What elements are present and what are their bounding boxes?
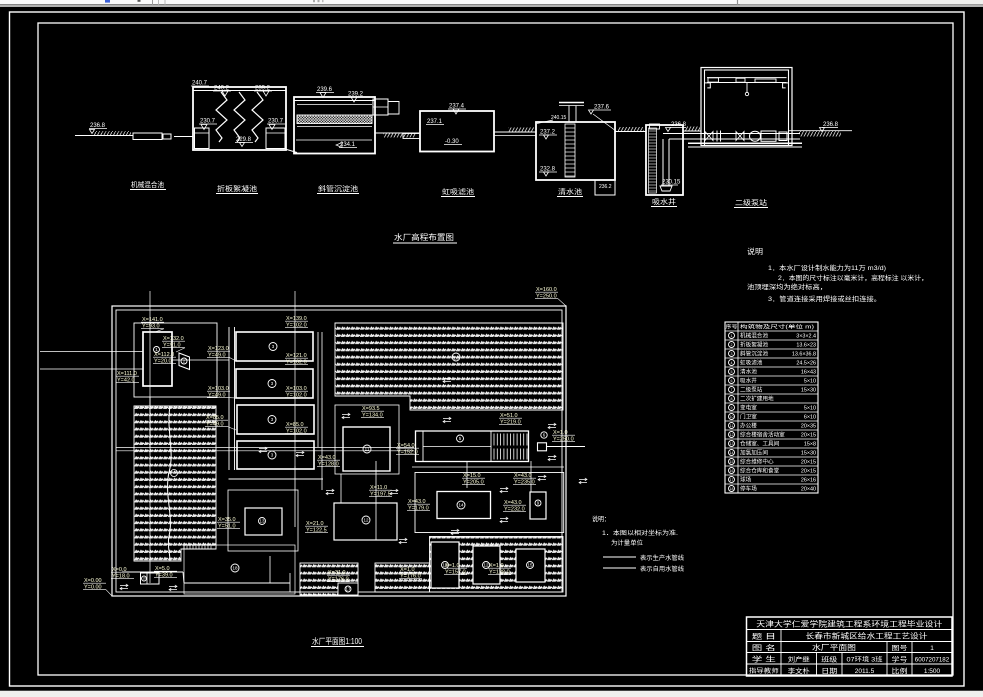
svg-text:5×10: 5×10	[804, 406, 816, 412]
svg-text:变电室: 变电室	[740, 404, 757, 412]
svg-text:为计量单位: 为计量单位	[611, 539, 643, 547]
svg-text:15: 15	[730, 460, 734, 464]
svg-text:加氯加压间: 加氯加压间	[740, 449, 768, 457]
svg-text:天津大学仁爱学院建筑工程系环境工程毕业设计: 天津大学仁爱学院建筑工程系环境工程毕业设计	[756, 620, 942, 629]
svg-text:18: 18	[232, 566, 238, 571]
svg-text:13.6×23: 13.6×23	[796, 343, 816, 349]
svg-text:15×8: 15×8	[804, 442, 816, 448]
svg-text:综合维修中心: 综合维修中心	[740, 458, 774, 466]
svg-text:指导教师: 指导教师	[749, 667, 779, 675]
svg-text:12: 12	[363, 518, 369, 523]
svg-text:18: 18	[730, 487, 734, 491]
svg-text:仓储室、工具间: 仓储室、工具间	[740, 440, 779, 448]
svg-text:16×43: 16×43	[801, 370, 816, 376]
svg-text:13.6×36.8: 13.6×36.8	[792, 352, 816, 358]
svg-text:表示自用水管线: 表示自用水管线	[640, 565, 684, 573]
svg-text:二级泵站: 二级泵站	[735, 198, 767, 207]
svg-text:20×40: 20×40	[801, 487, 816, 493]
svg-text:14: 14	[730, 451, 734, 455]
svg-text:综合仓库和食堂: 综合仓库和食堂	[740, 467, 780, 475]
svg-text:07环境 3班: 07环境 3班	[847, 655, 883, 663]
svg-text:长春市新城区给水工程工艺设计: 长春市新城区给水工程工艺设计	[806, 632, 928, 641]
svg-text:清水池: 清水池	[740, 368, 757, 376]
svg-text:5: 5	[731, 370, 733, 374]
svg-text:斜管沉淀池: 斜管沉淀池	[740, 350, 769, 358]
svg-text:1．本水厂设计制水能力为11万 m3/d): 1．本水厂设计制水能力为11万 m3/d)	[768, 263, 886, 272]
svg-text:10: 10	[730, 415, 734, 419]
svg-text:18: 18	[453, 356, 459, 361]
svg-text:日期: 日期	[821, 667, 838, 675]
svg-text:20×35: 20×35	[801, 424, 816, 430]
svg-text:4: 4	[731, 361, 733, 365]
svg-text:题 目: 题 目	[752, 633, 776, 641]
svg-text:3: 3	[731, 352, 733, 356]
svg-text:15×30: 15×30	[801, 388, 816, 394]
svg-text:26×16: 26×16	[801, 478, 816, 484]
svg-text:20×15: 20×15	[801, 433, 816, 439]
svg-text:1: 1	[731, 334, 733, 338]
svg-text:9: 9	[731, 406, 733, 410]
svg-text:2: 2	[731, 343, 733, 347]
svg-text:12: 12	[730, 433, 734, 437]
svg-text:虹吸滤池: 虹吸滤池	[442, 187, 474, 196]
svg-text:1:500: 1:500	[924, 668, 941, 675]
svg-text:吸水井: 吸水井	[652, 197, 676, 206]
svg-text:折板絮凝池: 折板絮凝池	[217, 184, 257, 193]
svg-text:16: 16	[730, 469, 734, 473]
svg-text:8: 8	[731, 397, 733, 401]
svg-text:图 名: 图 名	[752, 643, 776, 652]
svg-text:刘产继: 刘产继	[788, 654, 811, 663]
svg-text:6×10: 6×10	[804, 415, 816, 421]
svg-text:斜管沉淀池: 斜管沉淀池	[318, 184, 358, 193]
svg-text:水厂平面图: 水厂平面图	[812, 643, 856, 652]
svg-text:水厂平面图1:100: 水厂平面图1:100	[312, 636, 362, 646]
svg-text:班级: 班级	[821, 654, 838, 663]
svg-text:17: 17	[345, 587, 351, 592]
svg-text:2011.5: 2011.5	[855, 668, 875, 675]
svg-text:学 生: 学 生	[752, 654, 776, 663]
svg-text:池顶埋深均为绝对标高，: 池顶埋深均为绝对标高，	[747, 282, 827, 291]
svg-text:13: 13	[730, 442, 734, 446]
svg-text:6: 6	[731, 379, 733, 383]
svg-text:李文朴: 李文朴	[788, 666, 811, 675]
svg-text:7: 7	[731, 388, 733, 392]
svg-text:二级泵站: 二级泵站	[740, 386, 763, 394]
svg-text:表示生产水管线: 表示生产水管线	[640, 554, 684, 562]
svg-text:综合楼宿舍活动室: 综合楼宿舍活动室	[740, 431, 785, 439]
svg-text:3×3×2.4: 3×3×2.4	[796, 334, 816, 340]
svg-text:构筑物及尺寸(单位 m): 构筑物及尺寸(单位 m)	[740, 323, 814, 331]
svg-text:虹吸滤池: 虹吸滤池	[740, 359, 763, 367]
svg-text:3．管道连接采用焊接或丝扣连接。: 3．管道连接采用焊接或丝扣连接。	[768, 294, 881, 303]
svg-text:11: 11	[730, 424, 734, 428]
svg-text:20×15: 20×15	[801, 460, 816, 466]
svg-text:17: 17	[730, 478, 734, 482]
svg-text:240.15: 240.15	[551, 115, 567, 121]
svg-text:20×15: 20×15	[801, 469, 816, 475]
svg-text:2．本图的尺寸标注以毫米计，高程标注 以米计，: 2．本图的尺寸标注以毫米计，高程标注 以米计，	[778, 273, 928, 282]
svg-text:比例: 比例	[892, 666, 908, 675]
svg-text:球场: 球场	[740, 476, 752, 484]
svg-text:13: 13	[259, 519, 265, 524]
svg-text:水厂高程布置图: 水厂高程布置图	[394, 232, 454, 242]
svg-text:二次扩建用地: 二次扩建用地	[740, 395, 774, 403]
svg-text:吸水井: 吸水井	[740, 377, 757, 385]
svg-text:15: 15	[527, 563, 533, 568]
svg-text:10: 10	[142, 577, 146, 581]
svg-text:办公楼: 办公楼	[740, 422, 757, 430]
svg-text:门卫室: 门卫室	[740, 413, 757, 421]
svg-text:学号: 学号	[892, 654, 909, 663]
svg-text:机械混合池: 机械混合池	[740, 332, 769, 340]
svg-text:清水池: 清水池	[558, 187, 582, 196]
svg-text:机械混合池: 机械混合池	[131, 180, 164, 189]
svg-text:6007207182: 6007207182	[915, 656, 950, 663]
svg-text:15×30: 15×30	[801, 451, 816, 457]
svg-text:说明：: 说明：	[592, 514, 610, 523]
svg-text:折板絮凝池: 折板絮凝池	[740, 341, 769, 349]
svg-text:说明: 说明	[747, 246, 763, 256]
svg-text:24.5×26: 24.5×26	[796, 361, 816, 367]
svg-text:14: 14	[458, 503, 464, 508]
svg-text:停车场: 停车场	[740, 485, 757, 493]
svg-text:5×10: 5×10	[804, 379, 816, 385]
svg-text:序号: 序号	[726, 323, 738, 331]
svg-text:1．本图以相对坐标为准.: 1．本图以相对坐标为准.	[602, 529, 678, 537]
svg-text:图号: 图号	[892, 644, 909, 652]
svg-text:1: 1	[930, 645, 934, 652]
svg-text:236.2: 236.2	[599, 184, 612, 190]
